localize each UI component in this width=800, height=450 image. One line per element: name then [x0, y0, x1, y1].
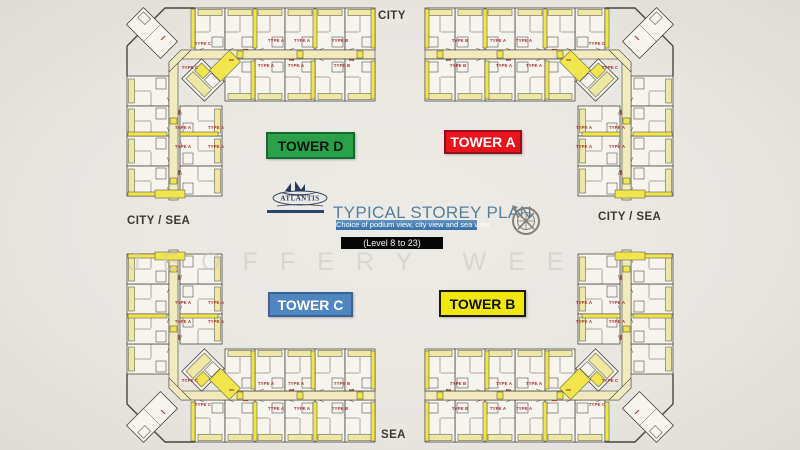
title-accent-line: [267, 210, 324, 213]
plan-subtitle-banner: Choice of podium view, city view and sea…: [336, 220, 477, 230]
unit-type-label: TYPE A: [516, 38, 533, 43]
unit-type-label: TYPE A: [208, 125, 225, 130]
unit-type-label: TYPE C: [602, 378, 619, 383]
unit-type-label: TYPE A: [576, 319, 593, 324]
direction-label-city-sea-right: CITY / SEA: [598, 211, 661, 223]
unit-type-label: TYPE B: [450, 63, 466, 68]
unit-type-label: TYPE A: [258, 63, 275, 68]
unit-type-label: TYPE A: [526, 381, 543, 386]
tower-c-label: TOWER C: [268, 292, 353, 317]
unit-type-label: TYPE B: [450, 381, 466, 386]
unit-type-label: TYPE A: [288, 63, 305, 68]
unit-type-label: TYPE A: [490, 38, 507, 43]
tower-a-label: TOWER A: [444, 130, 522, 154]
unit-type-label: TYPE B: [332, 406, 348, 411]
direction-label-city: CITY: [378, 10, 406, 22]
unit-type-label: TYPE A: [208, 300, 225, 305]
unit-type-label: TYPE A: [609, 125, 626, 130]
unit-type-label: TYPE C: [182, 378, 199, 383]
unit-type-label: TYPE A: [175, 319, 192, 324]
unit-type-label: TYPE A: [490, 406, 507, 411]
unit-type-label: TYPE C: [195, 41, 212, 46]
unit-type-label: TYPE A: [294, 38, 311, 43]
unit-type-label: TYPE A: [294, 406, 311, 411]
unit-type-label: TYPE C: [182, 65, 199, 70]
unit-type-label: TYPE C: [195, 402, 212, 407]
unit-type-label: TYPE B: [334, 63, 350, 68]
unit-type-label: TYPE A: [208, 319, 225, 324]
unit-type-label: TYPE A: [175, 144, 192, 149]
unit-type-label: TYPE C: [602, 65, 619, 70]
unit-type-label: TYPE B: [452, 406, 468, 411]
unit-type-label: TYPE A: [268, 38, 285, 43]
unit-type-label: TYPE A: [288, 381, 305, 386]
atlantis-logo: ATLANTIS: [271, 180, 329, 208]
direction-label-sea: SEA: [381, 429, 406, 441]
unit-type-label: TYPE A: [496, 63, 513, 68]
unit-type-label: TYPE B: [332, 38, 348, 43]
direction-label-city-sea-left: CITY / SEA: [127, 215, 190, 227]
unit-type-label: TYPE A: [576, 144, 593, 149]
unit-type-label: TYPE A: [208, 144, 225, 149]
floor-plan-wing-top-right: [425, 8, 673, 200]
compass-rose-icon: [508, 201, 544, 239]
unit-type-label: TYPE A: [526, 63, 543, 68]
unit-type-label: TYPE C: [589, 41, 606, 46]
level-range-badge: (Level 8 to 23): [341, 237, 443, 249]
unit-type-label: TYPE A: [516, 406, 533, 411]
storey-plan-image: TYPE CTYPE CTYPE ATYPE ATYPE ATYPE ATYPE…: [0, 0, 800, 450]
unit-type-label: TYPE B: [452, 38, 468, 43]
unit-type-label: TYPE A: [609, 300, 626, 305]
unit-type-label: TYPE A: [609, 319, 626, 324]
unit-type-label: TYPE A: [258, 381, 275, 386]
floor-plan-wing-top-left: [127, 8, 375, 200]
unit-type-label: TYPE A: [496, 381, 513, 386]
unit-type-label: TYPE A: [175, 125, 192, 130]
unit-type-label: TYPE B: [334, 381, 350, 386]
floor-plan-wing-bottom-left: [127, 250, 375, 442]
unit-type-label: TYPE A: [268, 406, 285, 411]
unit-type-label: TYPE C: [589, 402, 606, 407]
unit-type-label: TYPE A: [576, 300, 593, 305]
logo-wordmark: ATLANTIS: [280, 195, 319, 203]
tower-b-label: TOWER B: [439, 290, 526, 317]
unit-type-label: TYPE A: [609, 144, 626, 149]
floor-plan-wing-bottom-right: [425, 250, 673, 442]
tower-d-label: TOWER D: [266, 132, 355, 159]
unit-type-label: TYPE A: [576, 125, 593, 130]
unit-type-label: TYPE A: [175, 300, 192, 305]
